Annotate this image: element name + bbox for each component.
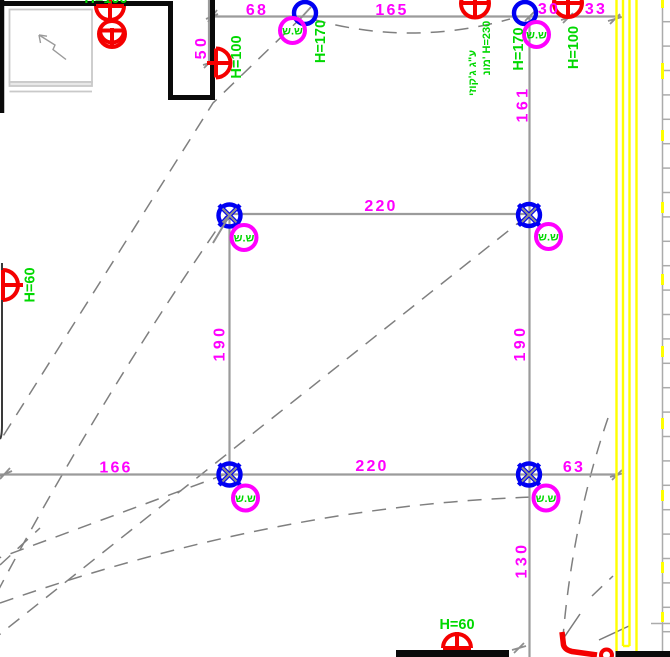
svg-text:ש.ש: ש.ש	[282, 26, 303, 38]
svg-text:30: 30	[538, 1, 560, 18]
svg-text:33: 33	[585, 1, 607, 18]
svg-text:ש.ש: ש.ש	[526, 30, 547, 42]
svg-text:190: 190	[512, 325, 529, 362]
svg-text:190: 190	[212, 325, 229, 362]
svg-text:68: 68	[246, 2, 268, 19]
svg-text:H=60: H=60	[439, 617, 474, 633]
svg-text:165: 165	[375, 2, 408, 19]
svg-text:220: 220	[364, 198, 397, 215]
svg-text:H=100: H=100	[566, 26, 582, 69]
svg-text:63: 63	[563, 459, 585, 476]
svg-text:H=170: H=170	[511, 27, 527, 70]
svg-text:ש.ש: ש.ש	[538, 232, 559, 244]
svg-text:ש.ש: ש.ש	[536, 493, 557, 505]
svg-text:220: 220	[355, 458, 388, 475]
svg-text:50: 50	[193, 35, 210, 60]
svg-text:H=170: H=170	[313, 20, 329, 63]
svg-text:161: 161	[515, 86, 532, 123]
svg-text:מונ' H=230: מונ' H=230	[481, 21, 493, 75]
svg-text:H=100: H=100	[84, 0, 127, 7]
svg-text:ש.ש: ש.ש	[235, 493, 256, 505]
svg-text:166: 166	[99, 460, 132, 477]
svg-text:130: 130	[514, 542, 531, 579]
svg-text:H=60: H=60	[23, 267, 39, 302]
svg-text:ע"ג ג'קוזי: ע"ג ג'קוזי	[467, 50, 479, 96]
svg-text:ש.ש: ש.ש	[234, 233, 255, 245]
svg-text:H=100: H=100	[229, 35, 245, 78]
